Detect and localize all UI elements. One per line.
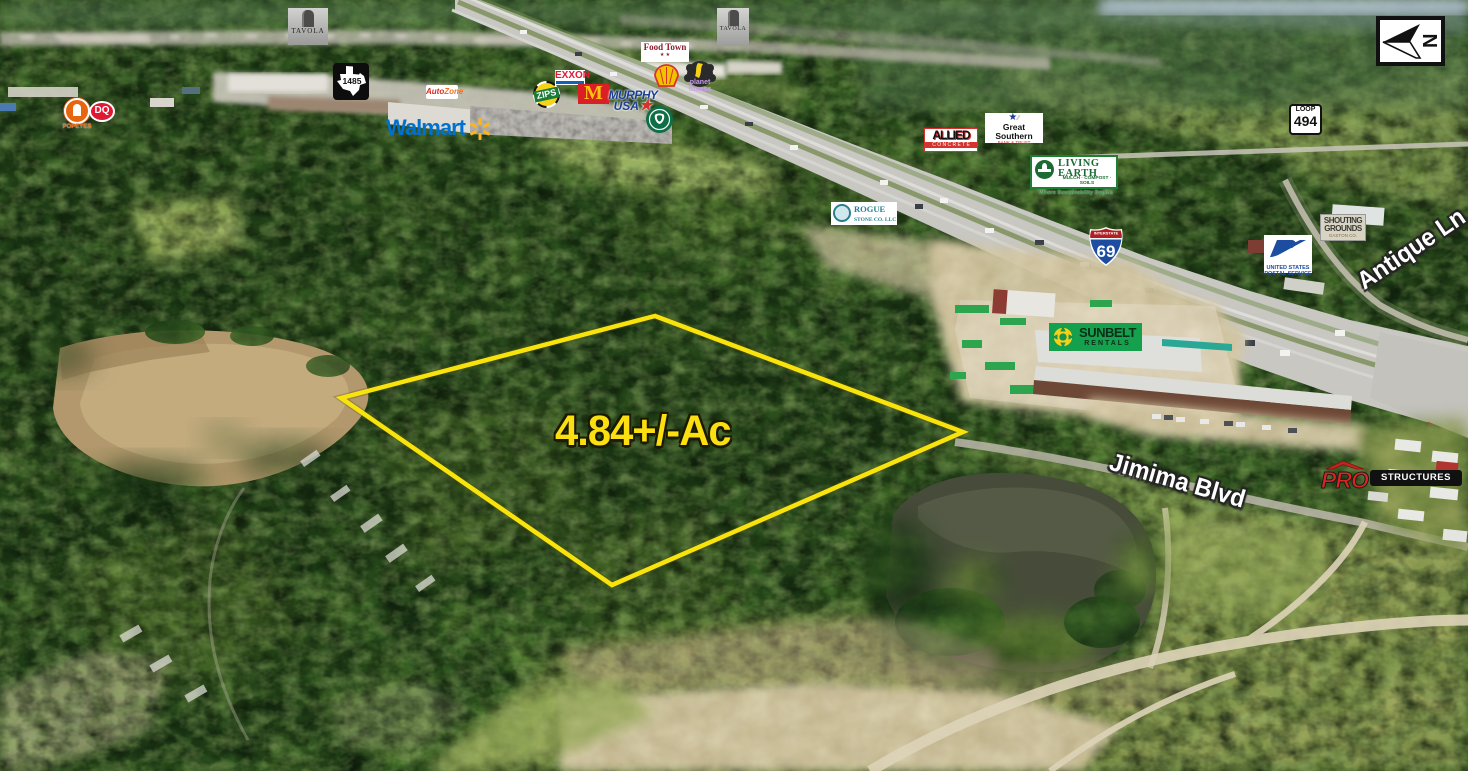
svg-text:69: 69 <box>1097 242 1116 261</box>
svg-text:INTERSTATE: INTERSTATE <box>1094 231 1119 236</box>
svg-text:fitness: fitness <box>689 86 712 93</box>
svg-text:planet: planet <box>690 79 711 86</box>
svg-text:PRO: PRO <box>1321 467 1369 490</box>
svg-text:N: N <box>1420 34 1441 48</box>
svg-text:1485: 1485 <box>343 76 362 86</box>
